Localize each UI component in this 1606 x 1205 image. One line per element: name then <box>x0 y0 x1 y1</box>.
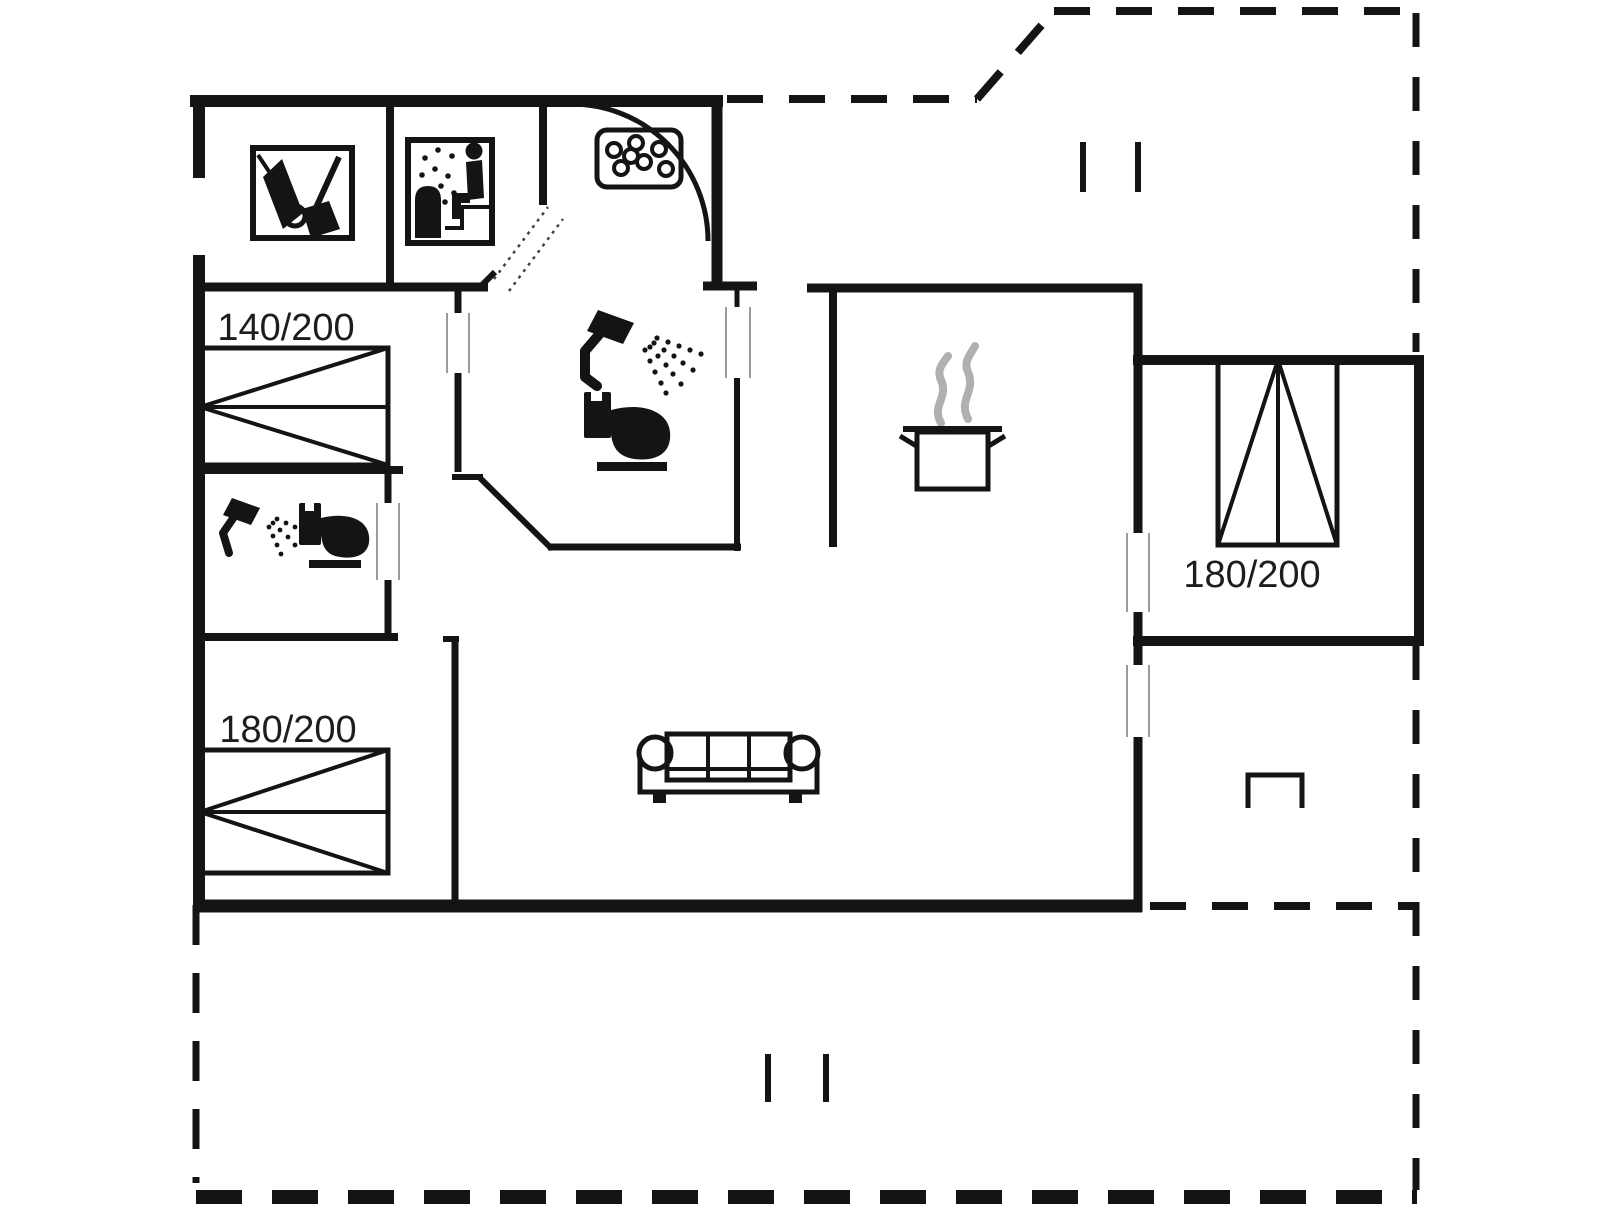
sauna-icon <box>408 140 492 243</box>
wall-bath-chamfer <box>480 478 552 549</box>
sofa-icon <box>639 734 818 803</box>
terrace-boundary-dashed <box>196 11 1417 1197</box>
floor-plan-drawing: 140/200 180/200 180/200 <box>0 0 1606 1205</box>
shower-icon <box>585 310 704 396</box>
bed-label-140-200: 140/200 <box>217 307 354 349</box>
spa-bubbles-icon <box>597 130 681 187</box>
bed-180x200-right <box>1218 360 1337 545</box>
dashed-diagonal <box>977 11 1054 99</box>
grill-marker-icon <box>1248 775 1302 808</box>
floor-plan: 140/200 180/200 180/200 <box>0 0 1606 1205</box>
door-marker-terrace <box>1124 665 1152 737</box>
window-marker-bath1 <box>723 307 751 378</box>
entrance-door-arc <box>571 104 708 241</box>
sauna-door-dotted <box>494 207 563 291</box>
bed-label-180-200-left: 180/200 <box>219 709 356 751</box>
door-marker-bedroom1 <box>444 313 472 373</box>
toilet-icon-2 <box>299 503 369 568</box>
steaming-pot-icon <box>900 346 1005 489</box>
door-marker-bedroom3 <box>1124 533 1152 612</box>
bed-180x200-left <box>200 750 388 873</box>
shower-spray-dots <box>642 335 703 395</box>
vacuum-broom-icon <box>253 148 352 238</box>
window-door-markers <box>374 307 1152 737</box>
door-marker-bath2 <box>374 503 402 580</box>
bed-label-180-200-right: 180/200 <box>1183 554 1320 596</box>
toilet-icon <box>584 392 670 471</box>
shower-icon-2 <box>223 498 306 556</box>
bed-140x200 <box>200 348 388 465</box>
